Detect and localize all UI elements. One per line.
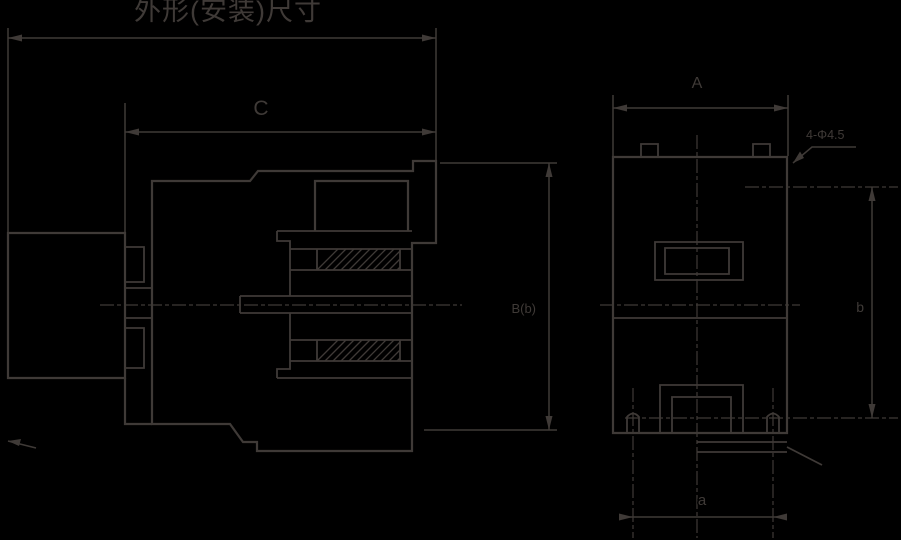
dim-label-vertical-spacing: b	[856, 299, 864, 315]
front-body	[613, 157, 787, 433]
dim-side-height	[424, 163, 557, 430]
hatching-lower	[317, 340, 400, 361]
dim-label-horizontal-spacing: a	[698, 492, 707, 509]
side-view-linework	[8, 161, 436, 451]
top-terminal-box	[315, 181, 408, 231]
drawing-title: 外形(安装)尺寸	[134, 0, 322, 26]
body-outline	[152, 161, 436, 451]
rail-tabs	[125, 247, 152, 368]
mounting-holes-label: 4-Φ4.5	[806, 128, 845, 142]
front-upper-recess	[655, 242, 743, 280]
drawing-canvas: 外形(安装)尺寸 C B(b) A 4-Φ4.5 b a	[0, 0, 901, 540]
dim-c	[125, 103, 436, 232]
upper-terminal	[277, 231, 412, 296]
dim-a	[613, 95, 788, 156]
rail-clip	[125, 378, 152, 424]
dim-label-width: A	[692, 75, 703, 92]
dim-overall-depth	[8, 28, 436, 233]
centerlines	[100, 135, 898, 538]
outline-drawing: 外形(安装)尺寸 C B(b) A 4-Φ4.5 b a	[0, 0, 901, 540]
front-top-tabs	[641, 144, 770, 157]
hatching-upper	[317, 249, 400, 270]
dim-label-c: C	[253, 97, 268, 120]
front-foot-detail	[697, 442, 822, 465]
lower-terminal	[277, 313, 412, 378]
front-bottom-slots	[627, 414, 779, 434]
dim-label-height-side: B(b)	[511, 301, 536, 316]
front-lower-recess	[660, 385, 743, 433]
mounting-hole-leader	[793, 147, 856, 163]
